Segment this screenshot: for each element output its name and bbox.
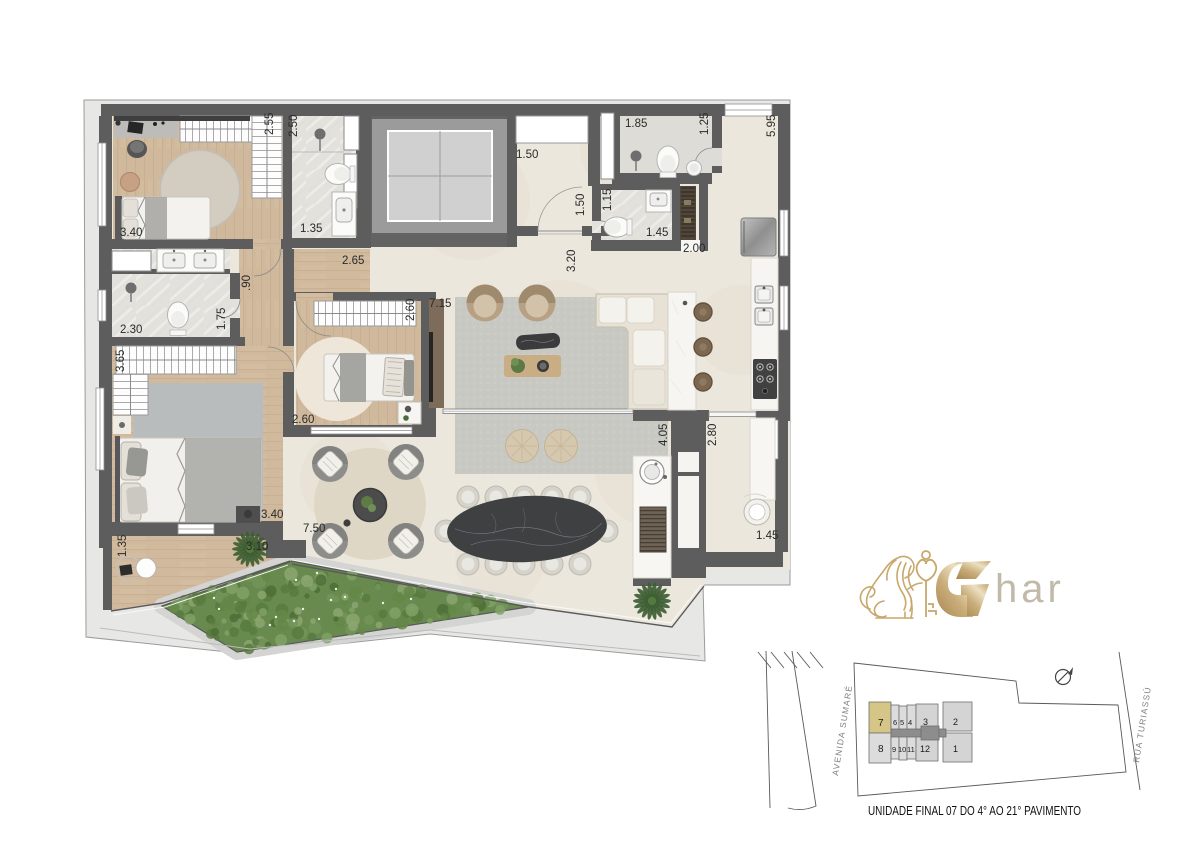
svg-text:4: 4	[908, 718, 912, 727]
svg-text:1.75: 1.75	[216, 308, 228, 330]
svg-text:2.00: 2.00	[683, 243, 705, 255]
svg-text:6: 6	[893, 718, 897, 727]
svg-text:1.50: 1.50	[575, 194, 587, 216]
svg-text:5: 5	[900, 718, 904, 727]
svg-text:2.60: 2.60	[405, 299, 417, 321]
svg-text:1.35: 1.35	[300, 223, 322, 235]
svg-text:1.85: 1.85	[625, 118, 647, 130]
svg-text:3.10: 3.10	[246, 541, 268, 553]
svg-text:2.50: 2.50	[288, 115, 300, 137]
svg-text:1.25: 1.25	[699, 113, 711, 135]
svg-text:UNIDADE FINAL 07 DO 4° AO 21°: UNIDADE FINAL 07 DO 4° AO 21° PAVIMENTO	[868, 803, 1081, 818]
svg-text:11: 11	[907, 745, 915, 754]
svg-text:1.35: 1.35	[117, 535, 129, 557]
svg-text:2.80: 2.80	[707, 424, 719, 446]
svg-text:3: 3	[923, 717, 928, 727]
svg-text:4.05: 4.05	[658, 424, 670, 446]
svg-text:2.30: 2.30	[120, 324, 142, 336]
svg-text:7.15: 7.15	[429, 298, 451, 310]
svg-text:3.40: 3.40	[120, 227, 142, 239]
svg-text:1: 1	[953, 744, 958, 754]
svg-text:3.65: 3.65	[115, 350, 127, 372]
svg-text:10: 10	[898, 745, 906, 754]
svg-text:.90: .90	[241, 275, 253, 291]
svg-text:8: 8	[878, 744, 884, 755]
svg-text:3.40: 3.40	[261, 509, 283, 521]
svg-text:2.55: 2.55	[264, 113, 276, 135]
svg-text:2: 2	[953, 717, 958, 727]
svg-text:har: har	[995, 567, 1065, 611]
svg-text:2.60: 2.60	[292, 414, 314, 426]
svg-text:7: 7	[878, 718, 884, 729]
svg-text:2.65: 2.65	[342, 255, 364, 267]
svg-text:7.50: 7.50	[303, 523, 325, 535]
svg-text:1.45: 1.45	[756, 530, 778, 542]
svg-text:3.20: 3.20	[566, 250, 578, 272]
svg-text:12: 12	[920, 744, 930, 754]
svg-text:9: 9	[892, 745, 896, 754]
svg-text:1.15: 1.15	[602, 189, 614, 211]
svg-text:1.50: 1.50	[516, 149, 538, 161]
svg-text:5.95: 5.95	[766, 115, 778, 137]
svg-text:1.45: 1.45	[646, 227, 668, 239]
